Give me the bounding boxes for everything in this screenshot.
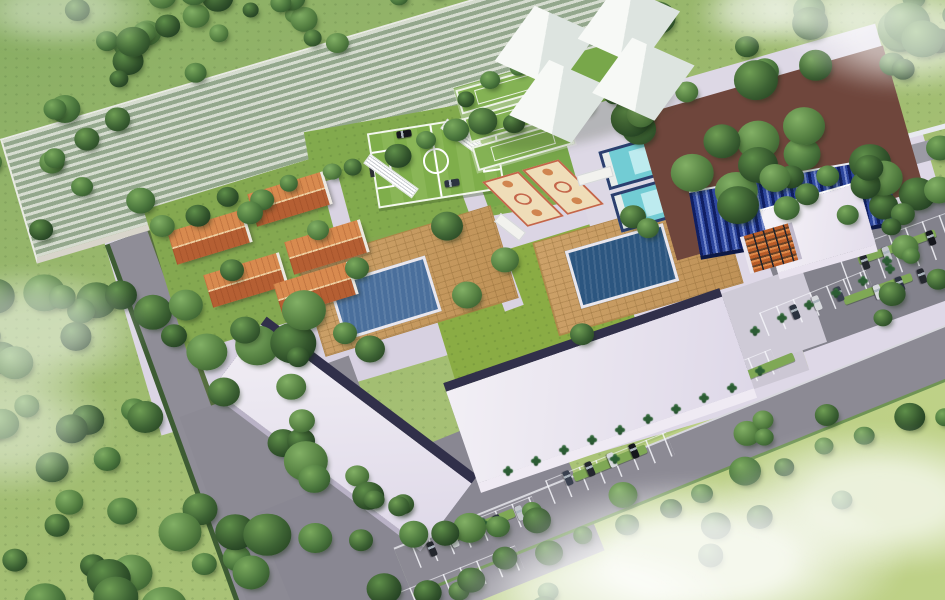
aerial-site-render bbox=[0, 0, 945, 600]
center-circle bbox=[421, 146, 451, 176]
